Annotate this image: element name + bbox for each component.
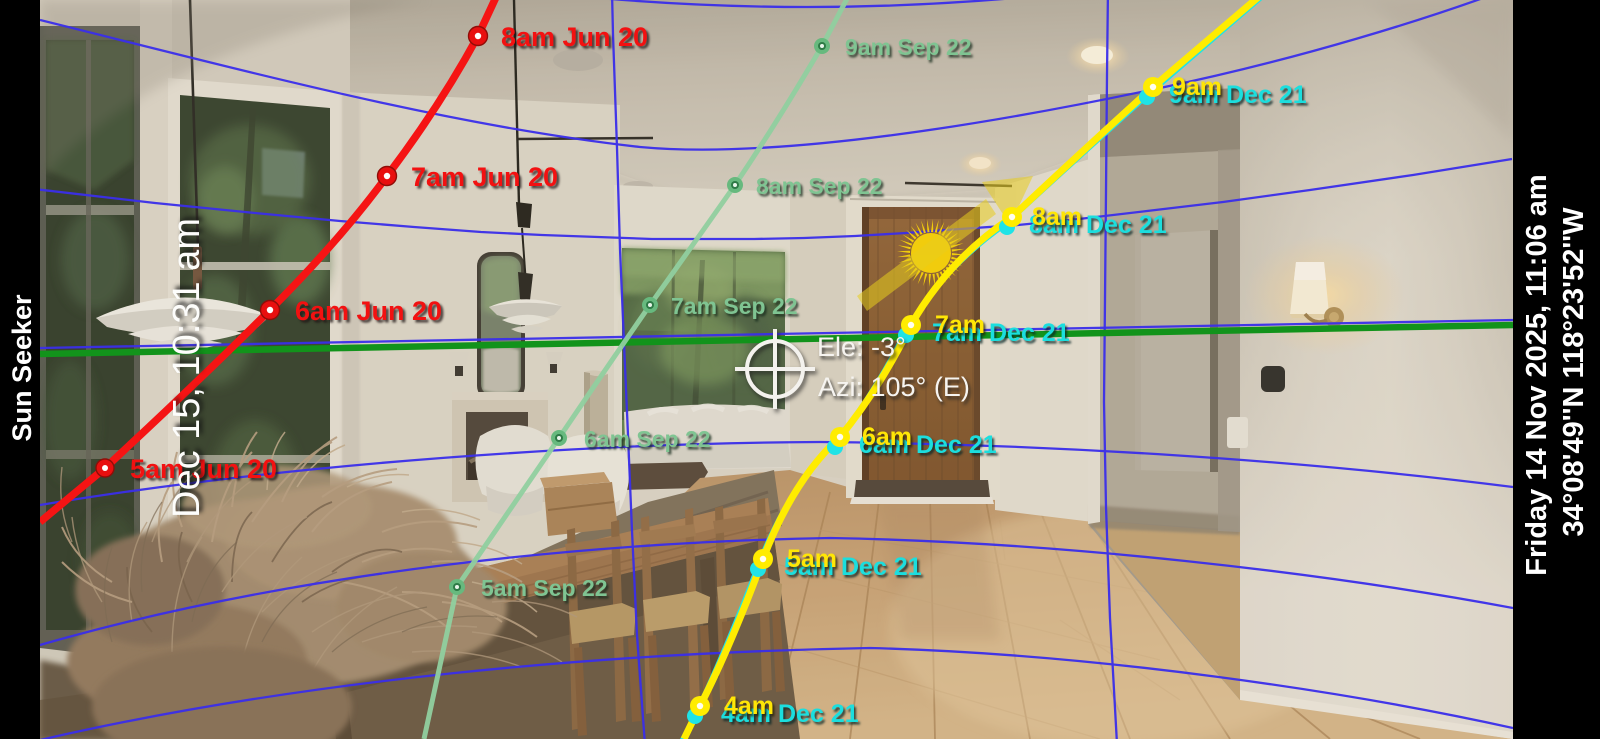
svg-text:9am: 9am — [1172, 73, 1222, 101]
svg-text:Dec 15, 10:31 am: Dec 15, 10:31 am — [166, 218, 208, 518]
svg-text:Azi: 105° (E): Azi: 105° (E) — [818, 372, 970, 402]
svg-text:7am Sep 22: 7am Sep 22 — [671, 293, 798, 319]
svg-text:Friday 14 Nov 2025, 11:06 am: Friday 14 Nov 2025, 11:06 am — [1521, 174, 1553, 575]
svg-text:Ele: -3°: Ele: -3° — [817, 332, 906, 362]
svg-text:8am Jun 20: 8am Jun 20 — [501, 22, 648, 52]
svg-text:6am: 6am — [862, 423, 912, 451]
svg-text:7am Jun 20: 7am Jun 20 — [411, 162, 558, 192]
svg-text:6am Jun 20: 6am Jun 20 — [295, 296, 442, 326]
svg-text:5am: 5am — [787, 545, 837, 573]
svg-text:8am Sep 22: 8am Sep 22 — [756, 173, 883, 199]
svg-text:34°08'49''N 118°23'52''W: 34°08'49''N 118°23'52''W — [1558, 207, 1590, 537]
svg-text:7am: 7am — [935, 311, 985, 339]
svg-text:8am: 8am — [1032, 203, 1082, 231]
svg-text:9am Sep 22: 9am Sep 22 — [845, 34, 972, 60]
svg-text:6am Sep 22: 6am Sep 22 — [584, 426, 711, 452]
svg-text:5am Sep 22: 5am Sep 22 — [481, 575, 608, 601]
svg-text:Sun Seeker: Sun Seeker — [7, 294, 37, 442]
svg-text:4am: 4am — [724, 692, 774, 720]
